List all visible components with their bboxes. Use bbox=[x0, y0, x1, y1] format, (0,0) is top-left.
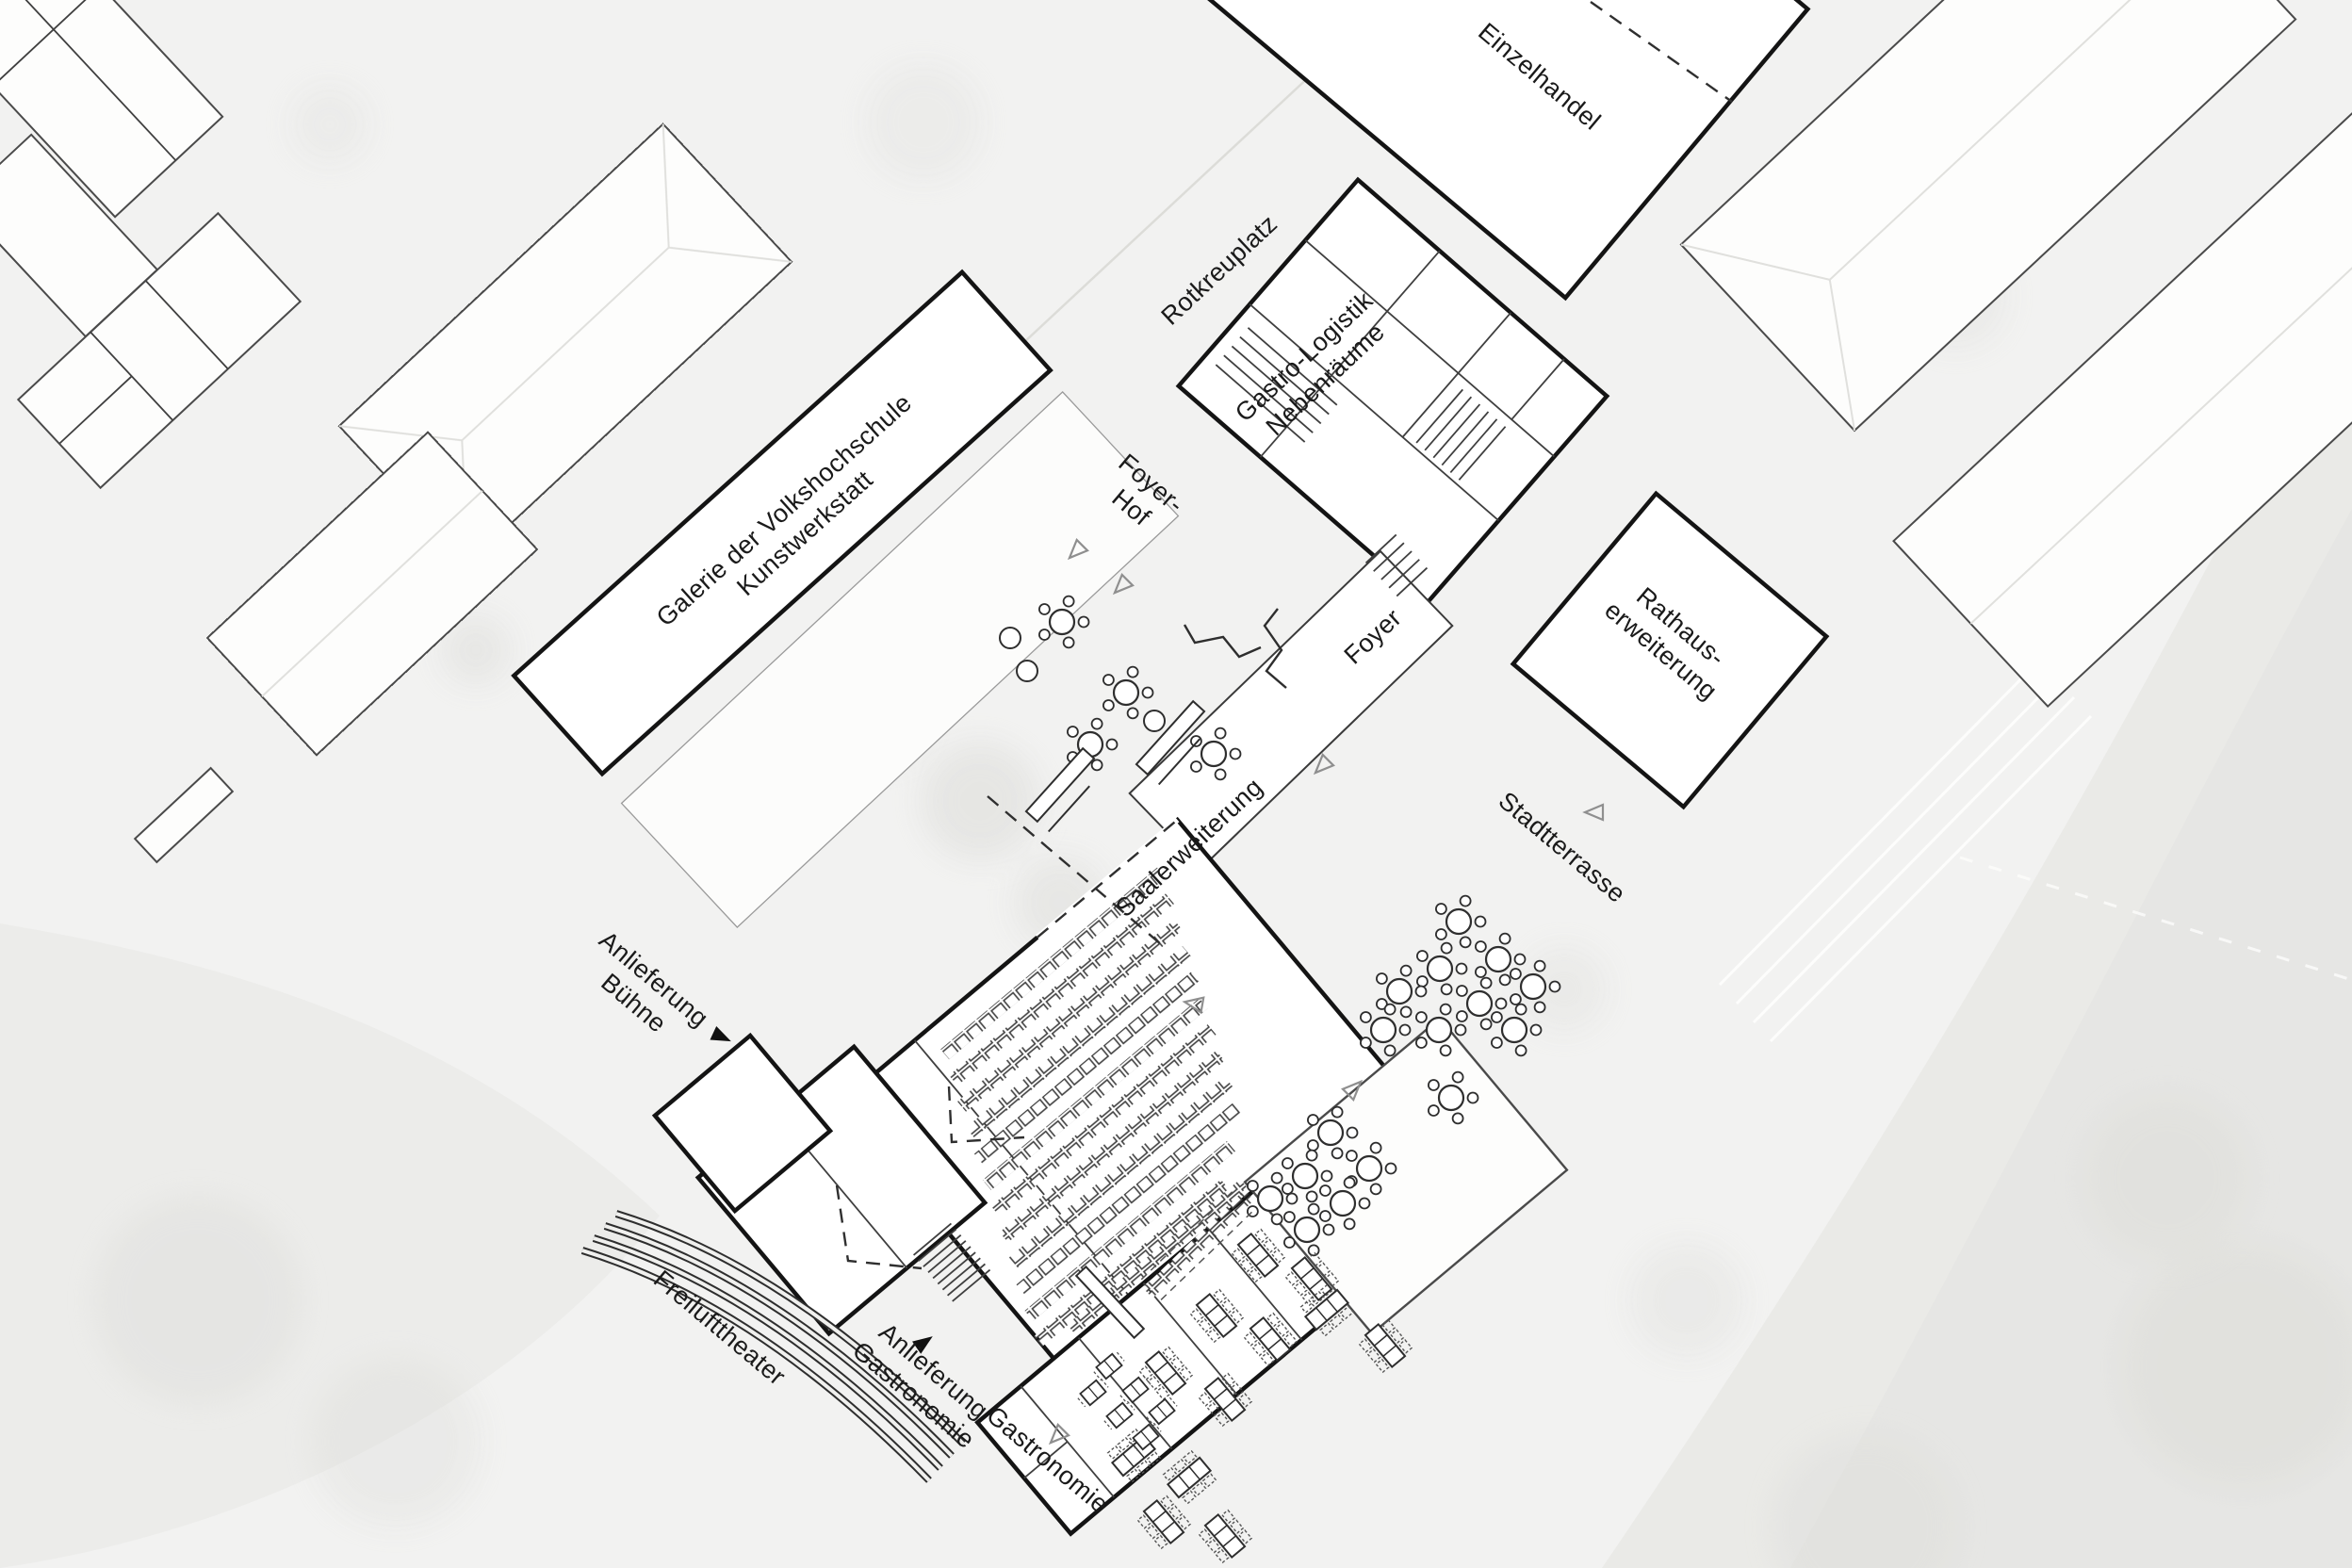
round-table-icon bbox=[1144, 710, 1165, 731]
site-plan-page: Einzelhandel Rotkreuplatz Gastro-Logisti… bbox=[0, 0, 2352, 1568]
round-table-icon bbox=[1000, 628, 1021, 648]
tree-wash bbox=[1630, 1244, 1743, 1357]
tree-wash bbox=[290, 85, 369, 164]
tree-wash bbox=[922, 743, 1038, 859]
tree-wash bbox=[311, 1357, 481, 1527]
round-table-icon bbox=[1017, 661, 1037, 681]
tree-wash bbox=[2082, 1093, 2252, 1263]
tree-wash bbox=[865, 64, 982, 181]
tree-wash bbox=[94, 1197, 302, 1404]
site-plan-drawing: Einzelhandel Rotkreuplatz Gastro-Logisti… bbox=[0, 0, 2352, 1568]
